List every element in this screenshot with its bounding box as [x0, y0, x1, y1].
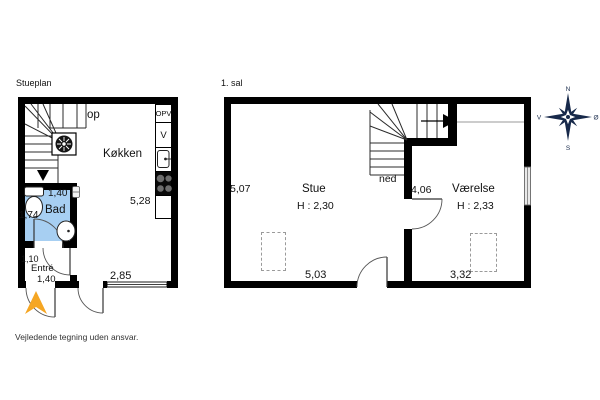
first-wall-bottom-right [387, 281, 531, 288]
stairwell-wall-horizontal [404, 138, 457, 146]
stove-box [155, 171, 172, 196]
room-divider-lower [404, 229, 412, 281]
dishwasher-box: OPV [155, 104, 172, 123]
bath-wall-right [70, 183, 77, 248]
first-wall-top [224, 97, 531, 104]
bath-wall-bottom-seg [62, 241, 77, 248]
first-floor-title: 1. sal [221, 79, 243, 88]
living-terrace-door-swing [357, 257, 387, 287]
bedroom-label: Værelse [452, 184, 495, 196]
bath-depth-dim: 1,74 [19, 211, 38, 221]
bath-wall-bottom-seg [18, 241, 34, 248]
bedroom-ceiling-label: H : 2,33 [457, 201, 494, 212]
washer-box: V [155, 122, 172, 148]
bath-label: Bad [45, 205, 65, 217]
kitchen-depth-dim: 5,28 [130, 196, 150, 207]
bedroom-door-swing [412, 199, 442, 229]
ground-floor-title: Stueplan [16, 79, 52, 88]
kitchen-exterior-door-swing [78, 288, 103, 313]
living-width-dim: 5,03 [305, 270, 326, 281]
compass-east-label: Ø [593, 115, 598, 122]
living-ceiling-label: H : 2,30 [297, 201, 334, 212]
compass-west-label: V [537, 115, 542, 122]
dishwasher-label: OPV [156, 109, 172, 118]
entry-label: Entré [31, 264, 54, 274]
compass-icon: N Ø S V [537, 86, 599, 152]
compass-north-label: N [566, 86, 571, 93]
entry-width-dim: 1,40 [37, 275, 56, 285]
stairs-down-label: ned [379, 174, 397, 185]
ground-wall-bottom-seg [18, 281, 26, 288]
kitchen-width-dim: 2,85 [110, 271, 131, 282]
ground-wall-bottom-seg [103, 281, 107, 288]
compass-south-label: S [566, 145, 571, 152]
living-room-label: Stue [302, 184, 326, 196]
window-bedroom-east [525, 167, 531, 205]
floorplan-drawing: OPV V [0, 0, 600, 400]
washer-label: V [160, 130, 166, 141]
ground-wall-right [171, 97, 178, 288]
roof-window-outline-bedroom [470, 233, 497, 272]
ventilation-fan-icon [52, 133, 76, 155]
ground-wall-bottom-seg [167, 281, 178, 288]
first-wall-bottom-left [224, 281, 357, 288]
main-entrance-arrow-icon [25, 291, 47, 314]
kitchen-sink-box [155, 147, 172, 172]
kitchen-label: Køkken [103, 149, 142, 161]
stairs-up-label: op [87, 110, 100, 122]
entry-wall-right-stub [70, 275, 77, 288]
ground-wall-top [18, 97, 178, 104]
ground-stairs-icon [25, 104, 86, 183]
stairs-up-arrow-icon [37, 170, 49, 181]
roof-window-outline-living [261, 232, 286, 271]
living-depth-dim: 5,07 [230, 184, 250, 195]
counter-box [155, 195, 172, 219]
window-kitchen-south [107, 282, 167, 287]
first-wall-right-lower [524, 205, 531, 288]
footer-disclaimer: Vejledende tegning uden ansvar. [15, 333, 138, 342]
bath-width-dim: 1,40 [48, 189, 67, 199]
front-door-swing [26, 288, 55, 317]
first-wall-right-upper [524, 97, 531, 167]
stair-partition-dim: 4,06 [411, 185, 431, 196]
bedroom-width-dim: 3,32 [450, 270, 471, 281]
